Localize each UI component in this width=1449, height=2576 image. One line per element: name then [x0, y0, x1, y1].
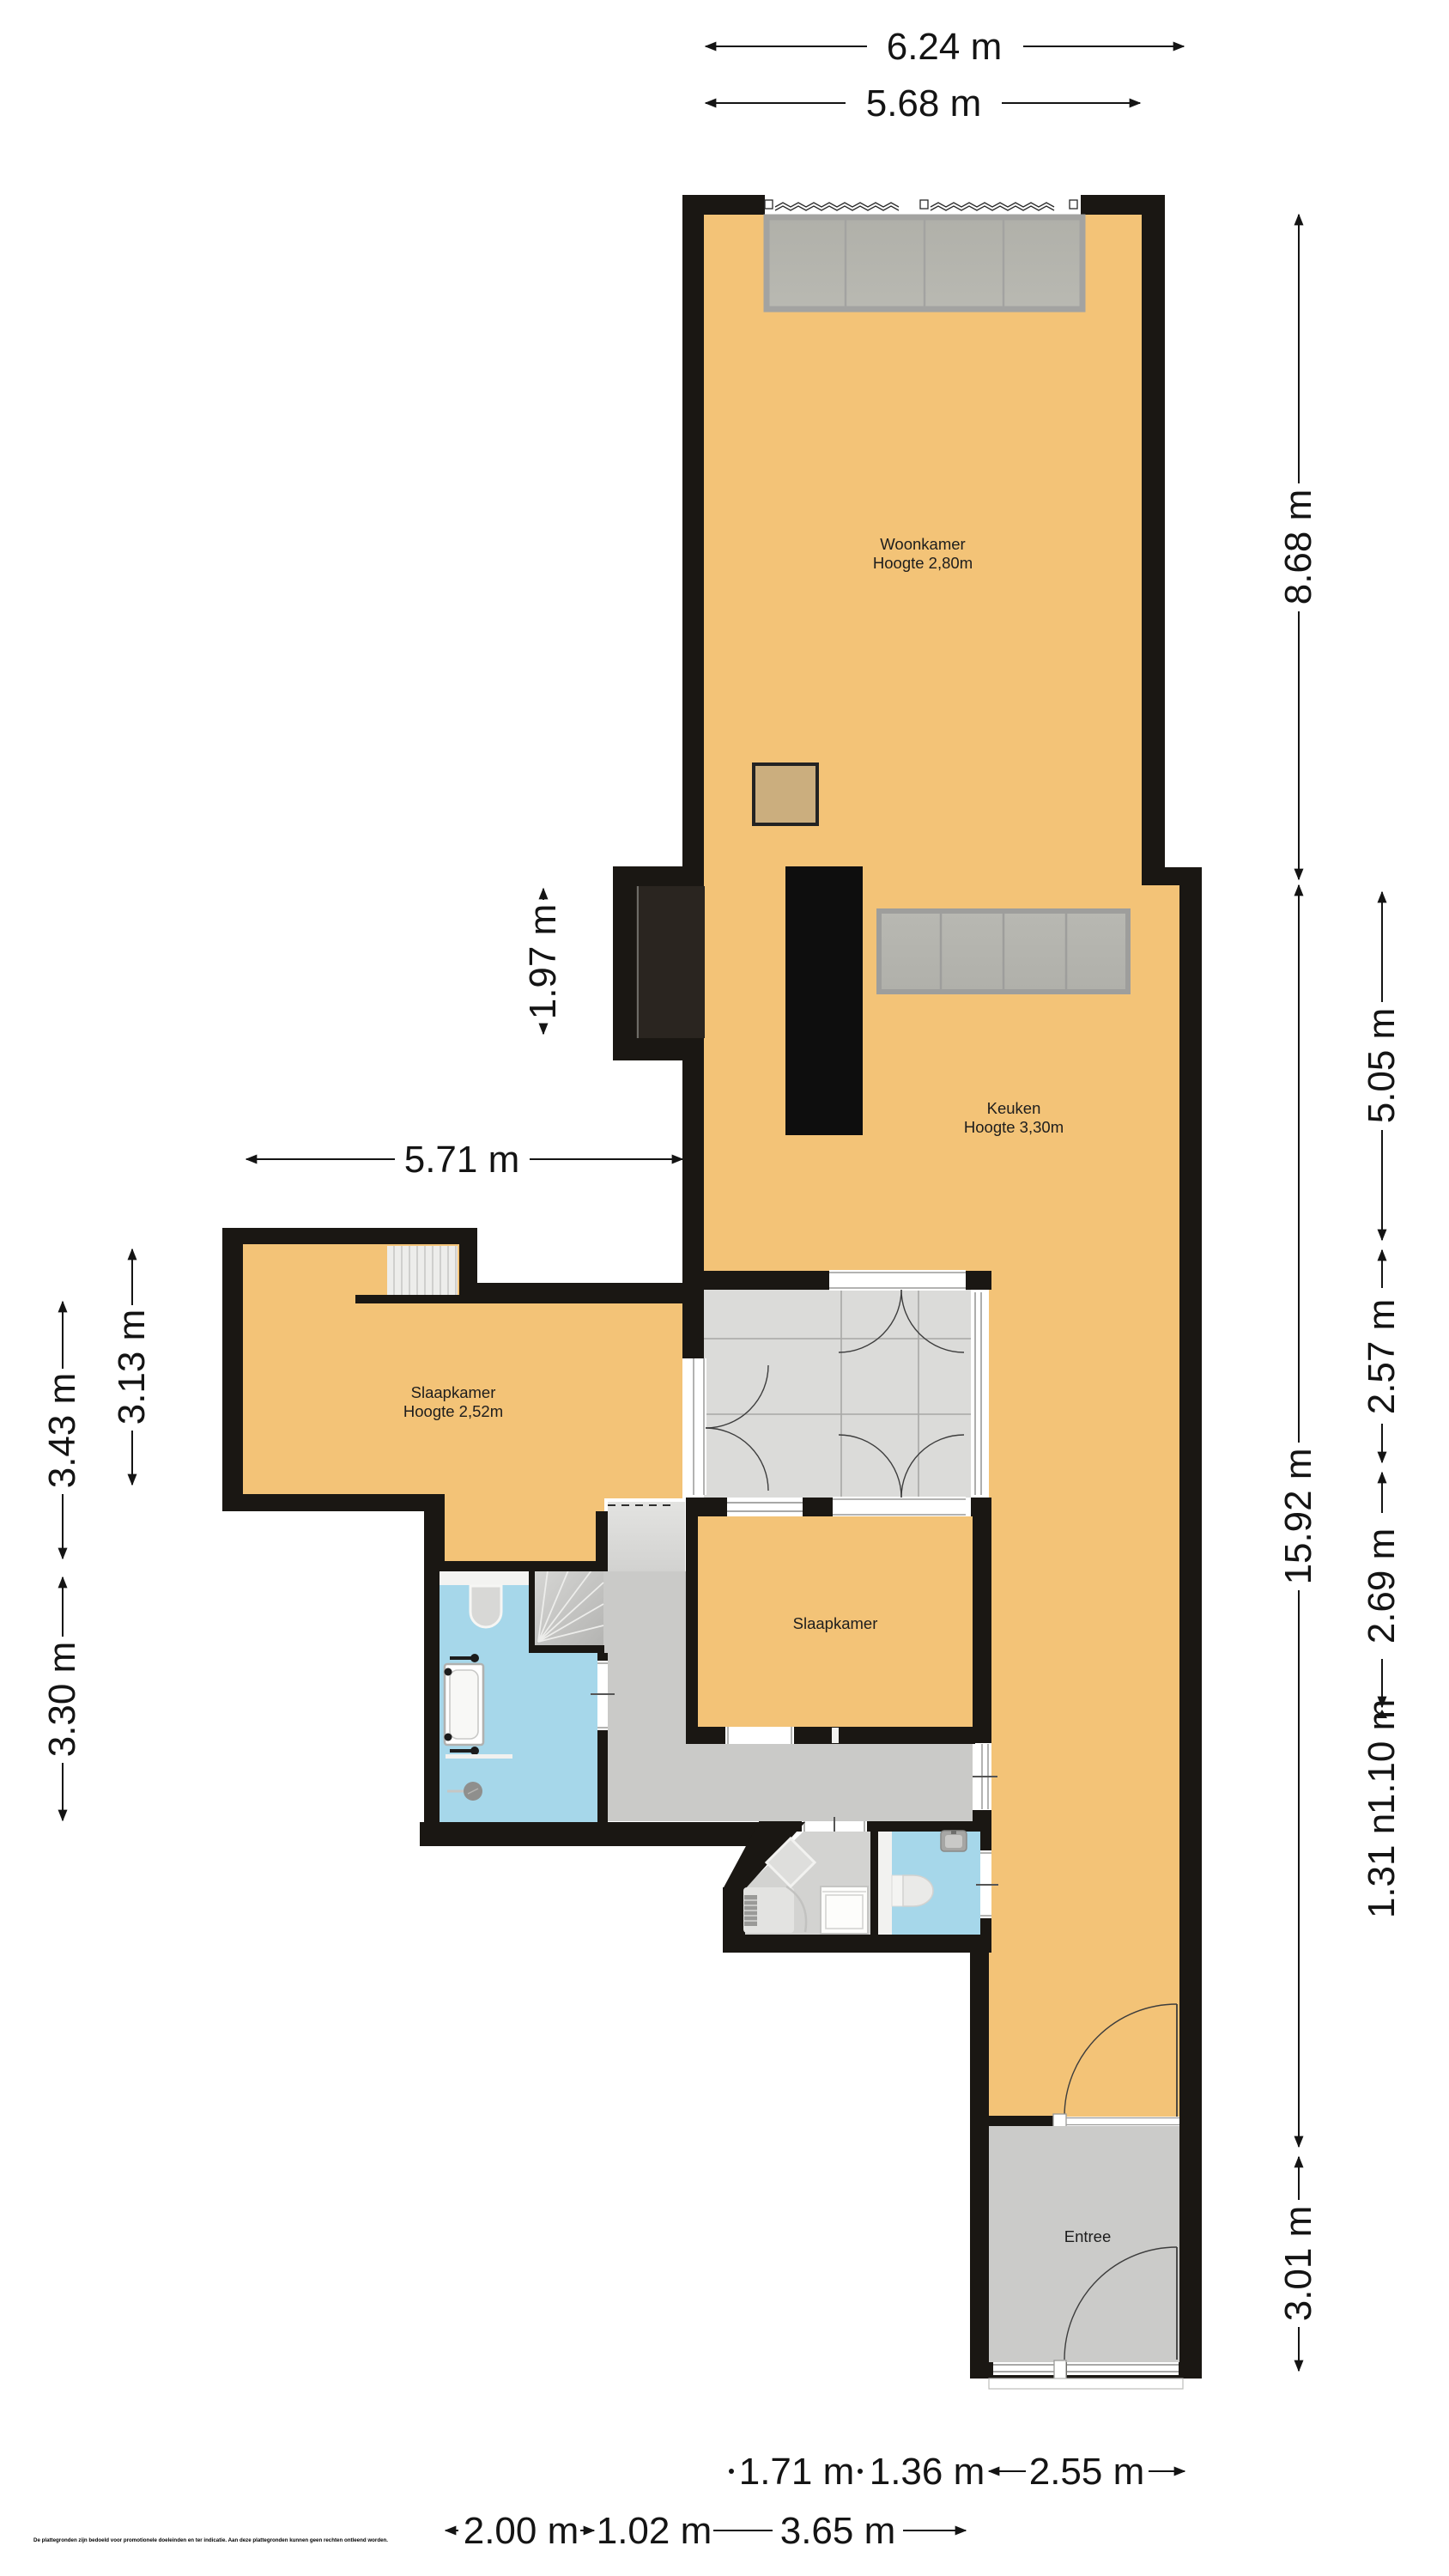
svg-text:1.97 m: 1.97 m	[522, 904, 564, 1020]
svg-text:5.68 m: 5.68 m	[866, 82, 982, 125]
svg-text:3.01 m: 3.01 m	[1277, 2206, 1319, 2322]
svg-text:1.36 m: 1.36 m	[870, 2451, 985, 2493]
svg-text:Hoogte 2,52m: Hoogte 2,52m	[403, 1402, 503, 1420]
svg-text:Hoogte 3,30m: Hoogte 3,30m	[964, 1118, 1064, 1136]
svg-text:Hoogte 2,80m: Hoogte 2,80m	[873, 554, 973, 572]
svg-text:6.24 m: 6.24 m	[887, 26, 1003, 68]
svg-text:2.57 m: 2.57 m	[1361, 1299, 1403, 1415]
svg-text:2.69 m: 2.69 m	[1361, 1528, 1403, 1644]
svg-text:15.92 m: 15.92 m	[1277, 1449, 1319, 1585]
svg-text:8.68 m: 8.68 m	[1277, 489, 1319, 605]
svg-text:Keuken: Keuken	[987, 1099, 1041, 1117]
svg-text:1.71 m: 1.71 m	[739, 2451, 855, 2493]
svg-text:3.65 m: 3.65 m	[780, 2510, 896, 2552]
svg-text:De plattegronden zijn bedoeld: De plattegronden zijn bedoeld voor promo…	[33, 2537, 388, 2543]
svg-text:Entree: Entree	[1064, 2227, 1112, 2245]
svg-text:3.13 m: 3.13 m	[111, 1309, 153, 1425]
svg-text:Woonkamer: Woonkamer	[880, 535, 965, 553]
svg-text:5.05 m: 5.05 m	[1361, 1008, 1403, 1124]
svg-text:5.71 m: 5.71 m	[404, 1139, 520, 1181]
svg-text:Slaapkamer: Slaapkamer	[411, 1383, 496, 1401]
svg-text:1.10 m: 1.10 m	[1361, 1699, 1403, 1815]
svg-text:2.00 m: 2.00 m	[464, 2510, 579, 2552]
svg-text:1.31 n: 1.31 n	[1361, 1814, 1403, 1918]
svg-text:3.43 m: 3.43 m	[41, 1373, 83, 1489]
svg-text:2.55 m: 2.55 m	[1029, 2451, 1145, 2493]
svg-text:3.30 m: 3.30 m	[41, 1642, 83, 1758]
svg-text:1.02 m: 1.02 m	[597, 2510, 712, 2552]
svg-text:Slaapkamer: Slaapkamer	[793, 1614, 878, 1632]
